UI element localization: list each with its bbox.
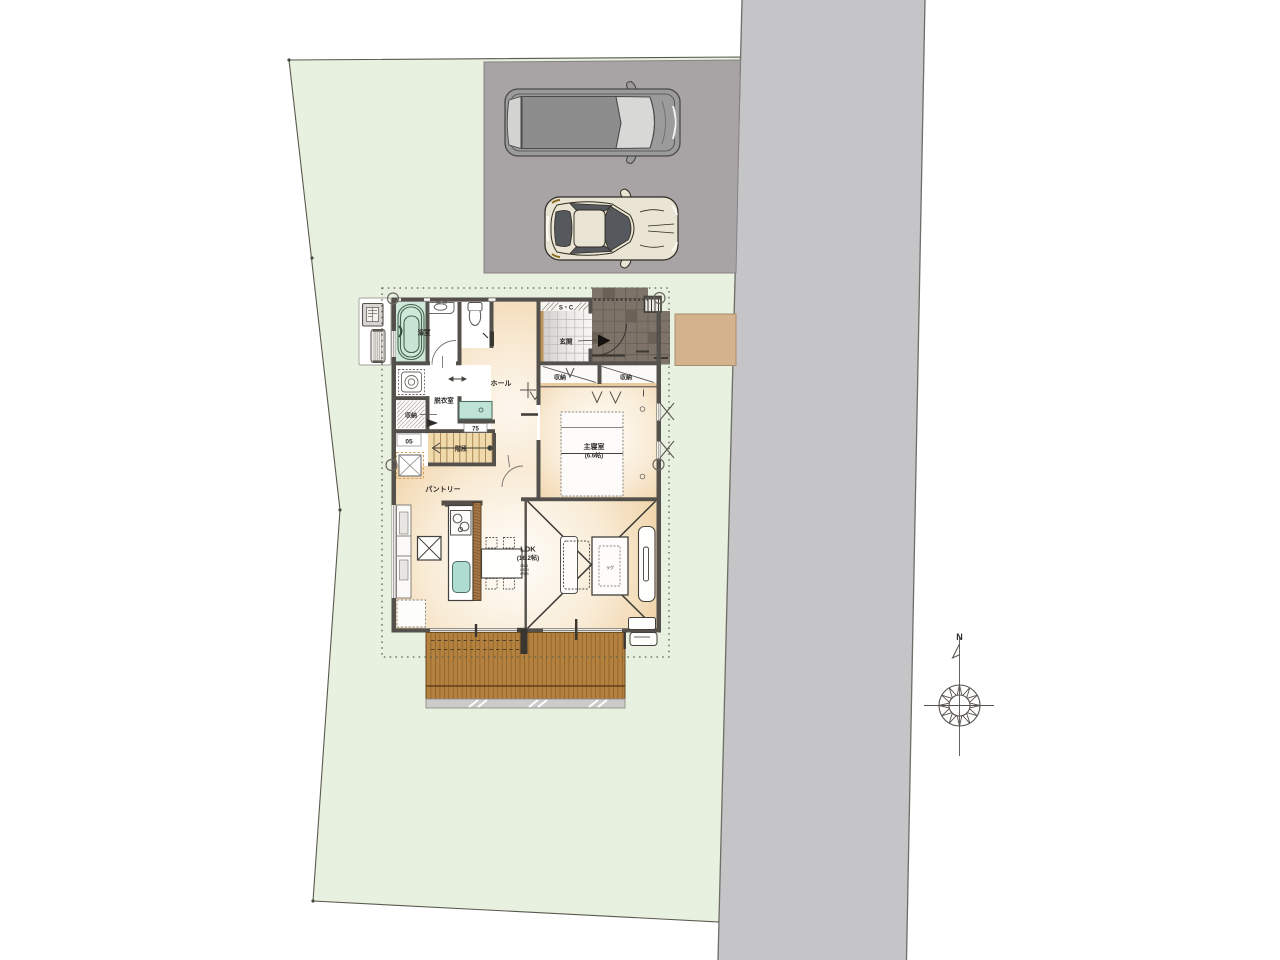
svg-text:N: N (956, 632, 963, 642)
svg-text:収納: 収納 (620, 374, 632, 382)
svg-text:W95B: W95B (520, 572, 529, 576)
svg-text:ラグ: ラグ (606, 564, 614, 570)
svg-text:(6.6帖): (6.6帖) (585, 452, 603, 460)
svg-text:ホール: ホール (491, 380, 512, 388)
svg-text:パントリー: パントリー (425, 485, 460, 494)
svg-text:(16.2帖): (16.2帖) (517, 554, 539, 562)
svg-text:階段: 階段 (455, 445, 467, 453)
svg-text:浴室: 浴室 (418, 328, 432, 337)
svg-text:LDK: LDK (520, 545, 536, 554)
svg-text:75: 75 (472, 427, 479, 433)
svg-text:玄関: 玄関 (560, 337, 574, 346)
svg-text:収納: 収納 (405, 412, 417, 420)
svg-text:収納: 収納 (554, 374, 566, 382)
svg-text:05: 05 (405, 439, 413, 446)
svg-text:主寝室: 主寝室 (584, 442, 605, 451)
svg-text:S・C: S・C (559, 306, 574, 312)
svg-text:脱衣室: 脱衣室 (434, 396, 454, 405)
